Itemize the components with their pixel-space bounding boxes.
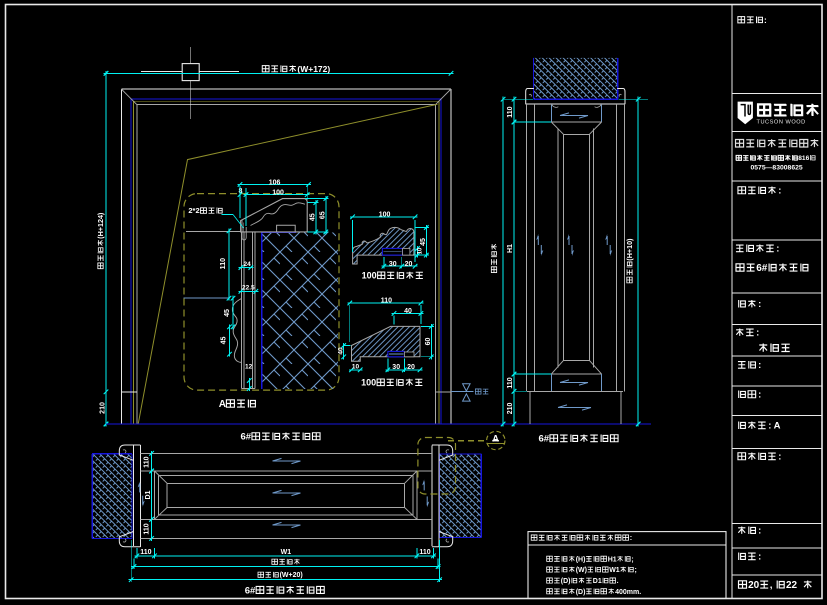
svg-text:0575—83008625: 0575—83008625	[751, 164, 803, 171]
svg-text:6#: 6#	[241, 432, 252, 443]
svg-text:110: 110	[507, 377, 514, 388]
svg-text:22.5: 22.5	[242, 284, 255, 291]
svg-text:40: 40	[404, 308, 412, 315]
svg-text:45: 45	[224, 309, 231, 317]
svg-text:;: ;	[635, 567, 637, 574]
svg-text:400mm.: 400mm.	[615, 589, 641, 596]
svg-text::: :	[778, 452, 781, 463]
svg-text::: :	[778, 186, 781, 197]
svg-text:(W+20): (W+20)	[280, 572, 303, 579]
svg-text::: :	[758, 360, 761, 371]
svg-text:D1: D1	[145, 490, 152, 499]
svg-text:24: 24	[244, 261, 252, 268]
svg-text:12: 12	[245, 364, 253, 371]
svg-text:210: 210	[100, 402, 107, 414]
svg-text:20: 20	[407, 364, 415, 371]
svg-text:H1: H1	[608, 556, 617, 563]
svg-text:10: 10	[352, 363, 360, 370]
svg-text:110: 110	[144, 523, 151, 534]
svg-text::: :	[758, 526, 761, 537]
svg-text::: :	[758, 390, 761, 401]
svg-text:(H+10): (H+10)	[625, 238, 634, 261]
svg-text:20: 20	[748, 580, 760, 591]
svg-text:110: 110	[419, 549, 430, 556]
svg-text:A: A	[492, 433, 499, 443]
svg-text:TUCSON WOOD: TUCSON WOOD	[757, 120, 806, 126]
svg-text:30: 30	[389, 261, 397, 268]
svg-text:110: 110	[144, 456, 151, 467]
svg-text:6#: 6#	[539, 434, 550, 445]
svg-text:100: 100	[379, 211, 391, 218]
svg-text:60: 60	[425, 338, 432, 346]
svg-text:100: 100	[272, 190, 284, 197]
svg-text:D1: D1	[593, 578, 602, 585]
svg-text:100: 100	[362, 271, 377, 281]
svg-text::: :	[758, 552, 761, 563]
svg-text::: :	[630, 533, 632, 542]
svg-text:(W+172): (W+172)	[297, 64, 330, 74]
svg-text:210: 210	[507, 403, 514, 415]
svg-text:65: 65	[320, 211, 327, 219]
svg-text:: A: : A	[768, 421, 780, 432]
svg-text:106: 106	[269, 179, 281, 186]
svg-text:45: 45	[420, 238, 427, 246]
svg-text:(H): (H)	[576, 556, 586, 563]
svg-text:20: 20	[405, 261, 413, 268]
svg-text::: :	[758, 299, 761, 310]
svg-text:110: 110	[381, 298, 392, 305]
svg-text:H1: H1	[507, 244, 514, 253]
svg-text:(D): (D)	[561, 578, 571, 585]
svg-text:2*2: 2*2	[188, 206, 199, 215]
svg-text:110: 110	[220, 258, 227, 269]
svg-text:A: A	[219, 399, 226, 410]
svg-text::: :	[756, 328, 759, 339]
svg-text::: :	[764, 15, 767, 25]
svg-text:45: 45	[309, 213, 316, 221]
svg-text:816: 816	[798, 155, 809, 162]
svg-text:40: 40	[337, 347, 344, 355]
svg-text:30: 30	[392, 364, 400, 371]
svg-text:8: 8	[239, 188, 243, 195]
svg-text:22: 22	[786, 580, 798, 591]
svg-text:W1: W1	[281, 549, 292, 556]
svg-text:.: .	[617, 578, 619, 585]
svg-text:100: 100	[361, 378, 376, 388]
svg-text:45: 45	[221, 337, 228, 345]
svg-text:(W): (W)	[576, 567, 587, 574]
svg-text:(H+124): (H+124)	[96, 212, 105, 239]
svg-text:10: 10	[418, 247, 424, 254]
svg-text:6#: 6#	[245, 585, 256, 596]
svg-text:;: ;	[631, 556, 633, 563]
svg-text:(D): (D)	[576, 589, 586, 596]
svg-text:,: ,	[770, 580, 773, 591]
svg-text:W1: W1	[609, 567, 620, 574]
svg-text::: :	[776, 244, 779, 255]
svg-text:110: 110	[507, 106, 514, 117]
svg-text:6#: 6#	[756, 263, 768, 274]
svg-text:110: 110	[140, 549, 151, 556]
